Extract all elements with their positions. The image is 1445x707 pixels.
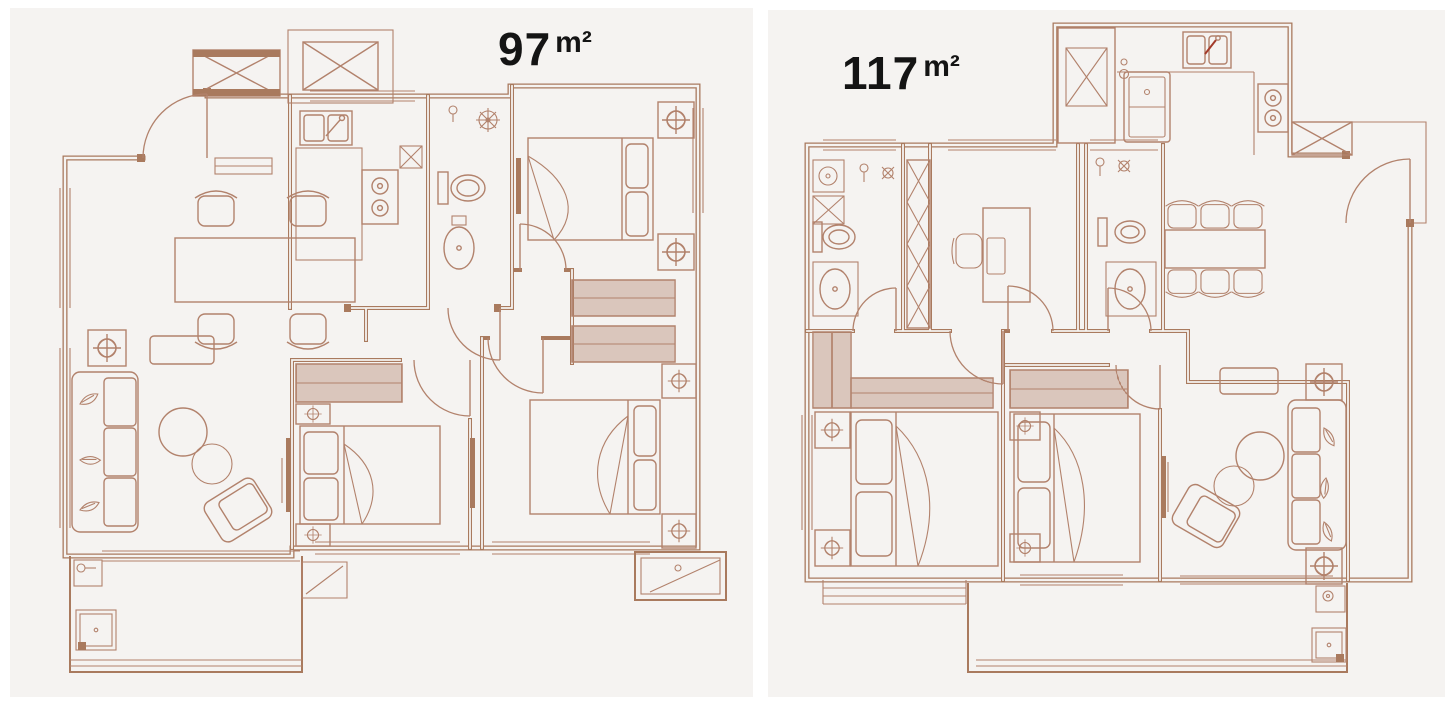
duct-shaft-icon xyxy=(1058,28,1129,143)
dining-table-icon xyxy=(1165,230,1265,268)
pillow xyxy=(634,406,656,456)
living-room xyxy=(72,330,291,545)
bed-icon xyxy=(1014,414,1140,562)
pillow xyxy=(626,192,648,236)
entry-door-arc xyxy=(143,94,207,158)
tv-panel xyxy=(1161,456,1166,518)
nightstand-icon xyxy=(296,404,330,424)
page: 97 m² xyxy=(0,0,1445,707)
balcony xyxy=(70,556,347,672)
armchair-icon xyxy=(201,475,275,545)
outer-walls xyxy=(807,25,1426,580)
coffee-table-icon xyxy=(159,408,232,484)
duct-shaft-icon xyxy=(193,50,280,96)
tv-panel xyxy=(516,158,521,214)
toilet-icon xyxy=(813,222,855,252)
balcony xyxy=(968,583,1347,672)
bed-icon xyxy=(530,400,660,514)
floor-drain-icon xyxy=(76,610,116,650)
dining-chair-icon xyxy=(195,191,237,226)
pillow xyxy=(304,478,338,520)
area-unit: m² xyxy=(923,52,960,82)
area-value: 117 xyxy=(842,50,919,96)
faucet-icon xyxy=(860,164,894,182)
ac-platform xyxy=(302,562,347,598)
door-jamb xyxy=(137,154,145,162)
door-arc xyxy=(448,308,500,360)
bed-icon xyxy=(300,426,440,524)
pillow xyxy=(856,420,892,484)
tv-panel xyxy=(470,438,475,508)
armchair-icon xyxy=(1169,482,1242,551)
pillow xyxy=(304,432,338,474)
dining-chair-icon xyxy=(195,314,237,349)
outer-walls xyxy=(65,86,698,556)
dining-chair-icon xyxy=(1232,201,1265,228)
bedroom-3 xyxy=(470,338,696,548)
desk-chair-icon xyxy=(952,234,982,268)
dining-chair-icon xyxy=(1166,270,1199,297)
entry xyxy=(1346,159,1410,223)
dining-table-icon xyxy=(175,238,355,302)
door-arc xyxy=(414,360,470,416)
sofa-icon xyxy=(1288,400,1346,550)
pillow xyxy=(1018,488,1050,548)
study xyxy=(952,208,1053,331)
nightstand-icon xyxy=(658,102,694,138)
dining-chair-icon xyxy=(1199,201,1232,228)
bedroom-master xyxy=(516,102,694,270)
dining-area xyxy=(175,191,355,349)
washing-machine-icon xyxy=(813,160,844,192)
kitchen-sink-icon xyxy=(300,111,352,145)
elevator-shaft-icon xyxy=(1292,122,1352,155)
floor-plan-drawing-97 xyxy=(10,8,753,697)
basin-icon xyxy=(1106,262,1156,316)
basin-icon xyxy=(444,216,474,269)
nightstand-icon xyxy=(658,234,694,270)
nightstand-icon xyxy=(296,524,330,546)
dining-chair-icon xyxy=(1166,201,1199,228)
kitchen xyxy=(1058,28,1352,155)
bathroom-1 xyxy=(813,160,896,331)
floor-drain-icon xyxy=(1312,628,1346,662)
bathroom xyxy=(438,106,500,360)
sofa-icon xyxy=(72,372,138,532)
pillow xyxy=(634,460,656,510)
kitchen-counter xyxy=(296,148,362,260)
blanket-fold xyxy=(1054,428,1084,562)
floor-plan-panel-117: 117 m² xyxy=(768,10,1445,697)
kitchen-sink-icon xyxy=(1183,32,1231,68)
toilet-icon xyxy=(1098,218,1145,246)
water-heater-icon xyxy=(400,146,422,168)
entry-door-arc xyxy=(1346,159,1410,223)
door-arc xyxy=(488,338,543,393)
bedroom-master xyxy=(813,331,1003,566)
door-jamb xyxy=(344,304,351,312)
living-room xyxy=(1161,364,1346,584)
bed-icon xyxy=(528,138,653,240)
rail-lines xyxy=(70,660,302,666)
blanket-fold xyxy=(896,426,930,566)
faucet-icon xyxy=(449,106,457,122)
side-table-icon xyxy=(1306,364,1342,400)
floor-plan-drawing-117 xyxy=(768,10,1445,697)
dining-chair-icon xyxy=(1232,270,1265,297)
dining-chair-icon xyxy=(287,314,329,349)
basin-icon xyxy=(813,262,858,316)
laundry-sink-icon xyxy=(813,196,844,224)
stove-icon xyxy=(1258,84,1288,132)
pillow xyxy=(626,144,648,188)
nightstand-icon xyxy=(662,364,696,398)
coffee-table-icon xyxy=(1214,432,1284,506)
nightstand-icon xyxy=(662,514,696,548)
bedroom-2 xyxy=(296,360,470,546)
stove-icon xyxy=(362,170,398,224)
bathroom-2 xyxy=(1096,158,1156,331)
duct-shaft-icon xyxy=(907,160,930,328)
dining-chair-icon xyxy=(287,191,329,226)
dining-area xyxy=(1165,201,1265,298)
blanket-fold xyxy=(528,156,568,240)
bedroom-2 xyxy=(1010,365,1160,562)
interior-walls xyxy=(137,86,572,548)
elevator-shaft-icon xyxy=(288,30,393,103)
nightstand-icon xyxy=(815,412,850,448)
area-label: 117 m² xyxy=(842,50,960,96)
area-unit: m² xyxy=(555,28,592,58)
door-arc xyxy=(950,331,1003,384)
ac-platform-right xyxy=(635,552,726,600)
shower-icon xyxy=(476,108,500,132)
area-label: 97 m² xyxy=(498,26,592,72)
washing-machine-icon xyxy=(1316,586,1345,612)
pillow xyxy=(856,492,892,556)
interior-walls xyxy=(807,145,1414,580)
tv-panel xyxy=(286,438,291,512)
bed-icon xyxy=(851,412,998,566)
entry-ledge xyxy=(1352,122,1426,223)
blanket-fold xyxy=(344,444,373,524)
faucet-icon xyxy=(1096,158,1130,176)
toilet-icon xyxy=(438,172,485,204)
entry xyxy=(143,94,272,174)
dining-chair-icon xyxy=(1199,270,1232,297)
wardrobe-hatch xyxy=(572,280,675,362)
floor-plan-panel-97: 97 m² xyxy=(10,8,753,697)
fridge-icon xyxy=(1124,72,1170,142)
door-arc xyxy=(520,224,566,270)
washing-machine-icon xyxy=(74,560,102,586)
area-value: 97 xyxy=(498,26,551,72)
console-table-icon xyxy=(150,336,214,364)
nightstand-icon xyxy=(815,530,850,566)
rail-lines xyxy=(976,660,1347,666)
blanket-fold xyxy=(598,416,628,514)
door-arc xyxy=(853,288,896,331)
side-table-icon xyxy=(88,330,126,366)
